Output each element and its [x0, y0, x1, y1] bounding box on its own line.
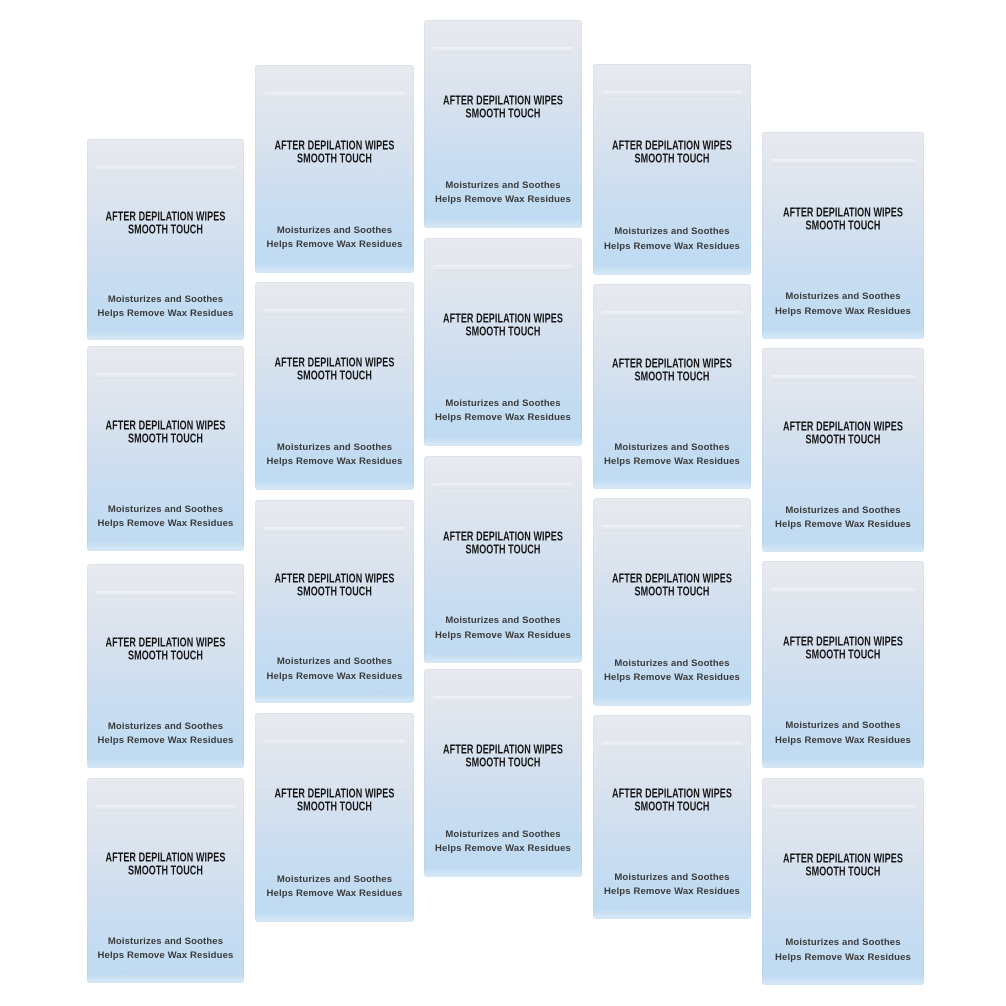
packet-title-line2: SMOOTH TOUCH — [101, 224, 230, 237]
packet-subtitle-line2: Helps Remove Wax Residues — [255, 238, 414, 252]
packet-title-line2: SMOOTH TOUCH — [607, 153, 737, 166]
wipes-packet: AFTER DEPILATION WIPES SMOOTH TOUCH Mois… — [255, 282, 414, 490]
wipes-packet: AFTER DEPILATION WIPES SMOOTH TOUCH Mois… — [593, 498, 751, 706]
packet-title: AFTER DEPILATION WIPES SMOOTH TOUCH — [101, 852, 230, 877]
seal-crimp-top — [263, 92, 406, 98]
packet-subtitle: Moisturizes and Soothes Helps Remove Wax… — [593, 871, 751, 900]
wipes-packet: AFTER DEPILATION WIPES SMOOTH TOUCH Mois… — [762, 778, 924, 985]
packet-title-line2: SMOOTH TOUCH — [269, 586, 399, 599]
packet-subtitle-line2: Helps Remove Wax Residues — [87, 307, 244, 321]
seal-crimp-top — [432, 265, 574, 271]
packet-title: AFTER DEPILATION WIPES SMOOTH TOUCH — [438, 531, 568, 556]
packet-title-line2: SMOOTH TOUCH — [269, 801, 399, 814]
seal-crimp-bottom — [87, 973, 244, 983]
packet-title: AFTER DEPILATION WIPES SMOOTH TOUCH — [438, 313, 568, 338]
wipes-packet: AFTER DEPILATION WIPES SMOOTH TOUCH Mois… — [762, 348, 924, 552]
packet-title: AFTER DEPILATION WIPES SMOOTH TOUCH — [438, 95, 568, 120]
seal-crimp-bottom — [424, 653, 582, 663]
packet-title-line1: AFTER DEPILATION WIPES — [438, 313, 568, 326]
packet-subtitle-line1: Moisturizes and Soothes — [593, 225, 751, 239]
packet-title-line2: SMOOTH TOUCH — [607, 801, 737, 814]
packet-subtitle-line2: Helps Remove Wax Residues — [87, 949, 244, 963]
packet-title-line1: AFTER DEPILATION WIPES — [777, 207, 910, 220]
packet-title-line1: AFTER DEPILATION WIPES — [438, 95, 568, 108]
seal-crimp-top — [432, 47, 574, 53]
seal-crimp-top — [95, 805, 236, 811]
packet-subtitle-line1: Moisturizes and Soothes — [424, 179, 582, 193]
packet-subtitle-line1: Moisturizes and Soothes — [593, 871, 751, 885]
seal-crimp-bottom — [593, 479, 751, 489]
packet-subtitle-line1: Moisturizes and Soothes — [424, 397, 582, 411]
packet-title-line2: SMOOTH TOUCH — [777, 865, 910, 878]
packet-title-line2: SMOOTH TOUCH — [607, 586, 737, 599]
packet-subtitle-line2: Helps Remove Wax Residues — [593, 455, 751, 469]
packet-title-line2: SMOOTH TOUCH — [438, 757, 568, 770]
seal-crimp-bottom — [255, 263, 414, 273]
packet-subtitle-line1: Moisturizes and Soothes — [87, 720, 244, 734]
wipes-packet: AFTER DEPILATION WIPES SMOOTH TOUCH Mois… — [87, 346, 244, 551]
packet-subtitle-line2: Helps Remove Wax Residues — [424, 193, 582, 207]
packet-title-line1: AFTER DEPILATION WIPES — [101, 852, 230, 865]
packet-subtitle-line1: Moisturizes and Soothes — [424, 828, 582, 842]
packet-title: AFTER DEPILATION WIPES SMOOTH TOUCH — [101, 637, 230, 662]
seal-crimp-top — [95, 373, 236, 379]
seal-crimp-top — [432, 696, 574, 702]
packet-subtitle: Moisturizes and Soothes Helps Remove Wax… — [87, 935, 244, 964]
packet-title: AFTER DEPILATION WIPES SMOOTH TOUCH — [269, 140, 399, 165]
packet-subtitle-line1: Moisturizes and Soothes — [87, 935, 244, 949]
packet-title-line2: SMOOTH TOUCH — [777, 434, 910, 447]
packet-subtitle: Moisturizes and Soothes Helps Remove Wax… — [762, 290, 924, 319]
packet-title: AFTER DEPILATION WIPES SMOOTH TOUCH — [101, 211, 230, 236]
packet-title: AFTER DEPILATION WIPES SMOOTH TOUCH — [269, 788, 399, 813]
seal-crimp-top — [601, 311, 743, 317]
wipes-packet: AFTER DEPILATION WIPES SMOOTH TOUCH Mois… — [255, 713, 414, 922]
packet-subtitle-line2: Helps Remove Wax Residues — [762, 734, 924, 748]
packet-subtitle-line1: Moisturizes and Soothes — [255, 655, 414, 669]
seal-crimp-bottom — [87, 758, 244, 768]
packet-title-line2: SMOOTH TOUCH — [101, 865, 230, 878]
packet-title-line1: AFTER DEPILATION WIPES — [777, 636, 910, 649]
packet-title: AFTER DEPILATION WIPES SMOOTH TOUCH — [777, 207, 910, 232]
seal-crimp-bottom — [87, 330, 244, 340]
seal-crimp-top — [601, 742, 743, 748]
seal-crimp-top — [432, 483, 574, 489]
packet-title-line1: AFTER DEPILATION WIPES — [607, 358, 737, 371]
packet-title: AFTER DEPILATION WIPES SMOOTH TOUCH — [269, 573, 399, 598]
packet-title-line2: SMOOTH TOUCH — [438, 326, 568, 339]
packet-title-line1: AFTER DEPILATION WIPES — [777, 853, 910, 866]
packet-subtitle-line2: Helps Remove Wax Residues — [424, 411, 582, 425]
packet-title: AFTER DEPILATION WIPES SMOOTH TOUCH — [607, 358, 737, 383]
packet-subtitle: Moisturizes and Soothes Helps Remove Wax… — [87, 720, 244, 749]
seal-crimp-top — [770, 588, 916, 594]
packet-title: AFTER DEPILATION WIPES SMOOTH TOUCH — [607, 140, 737, 165]
seal-crimp-bottom — [593, 265, 751, 275]
seal-crimp-bottom — [762, 758, 924, 768]
packet-subtitle: Moisturizes and Soothes Helps Remove Wax… — [762, 936, 924, 965]
packet-subtitle-line1: Moisturizes and Soothes — [593, 441, 751, 455]
packet-subtitle-line1: Moisturizes and Soothes — [593, 657, 751, 671]
packet-title-line1: AFTER DEPILATION WIPES — [607, 140, 737, 153]
packet-subtitle-line2: Helps Remove Wax Residues — [255, 455, 414, 469]
packet-subtitle: Moisturizes and Soothes Helps Remove Wax… — [593, 657, 751, 686]
packet-title: AFTER DEPILATION WIPES SMOOTH TOUCH — [777, 636, 910, 661]
packet-title-line1: AFTER DEPILATION WIPES — [438, 531, 568, 544]
packet-subtitle-line2: Helps Remove Wax Residues — [255, 670, 414, 684]
packet-subtitle: Moisturizes and Soothes Helps Remove Wax… — [593, 225, 751, 254]
wipes-packet: AFTER DEPILATION WIPES SMOOTH TOUCH Mois… — [87, 778, 244, 983]
packet-title-line2: SMOOTH TOUCH — [777, 648, 910, 661]
packet-subtitle-line2: Helps Remove Wax Residues — [593, 671, 751, 685]
packet-title: AFTER DEPILATION WIPES SMOOTH TOUCH — [777, 853, 910, 878]
packet-title-line2: SMOOTH TOUCH — [269, 153, 399, 166]
packet-title-line1: AFTER DEPILATION WIPES — [101, 420, 230, 433]
seal-crimp-top — [263, 527, 406, 533]
packet-title-line2: SMOOTH TOUCH — [101, 650, 230, 663]
packet-subtitle: Moisturizes and Soothes Helps Remove Wax… — [255, 441, 414, 470]
packet-subtitle-line1: Moisturizes and Soothes — [424, 614, 582, 628]
packet-subtitle: Moisturizes and Soothes Helps Remove Wax… — [255, 655, 414, 684]
packet-title: AFTER DEPILATION WIPES SMOOTH TOUCH — [607, 573, 737, 598]
seal-crimp-bottom — [762, 975, 924, 985]
packet-subtitle-line2: Helps Remove Wax Residues — [424, 842, 582, 856]
packet-subtitle-line2: Helps Remove Wax Residues — [762, 305, 924, 319]
packet-title-line2: SMOOTH TOUCH — [101, 433, 230, 446]
packet-subtitle: Moisturizes and Soothes Helps Remove Wax… — [87, 293, 244, 322]
wipes-packet: AFTER DEPILATION WIPES SMOOTH TOUCH Mois… — [255, 500, 414, 703]
seal-crimp-top — [770, 375, 916, 381]
packet-subtitle-line2: Helps Remove Wax Residues — [424, 629, 582, 643]
packet-title: AFTER DEPILATION WIPES SMOOTH TOUCH — [269, 357, 399, 382]
seal-crimp-bottom — [255, 912, 414, 922]
packet-subtitle: Moisturizes and Soothes Helps Remove Wax… — [255, 873, 414, 902]
packet-title: AFTER DEPILATION WIPES SMOOTH TOUCH — [777, 421, 910, 446]
packet-subtitle: Moisturizes and Soothes Helps Remove Wax… — [593, 441, 751, 470]
seal-crimp-bottom — [424, 867, 582, 877]
packet-subtitle-line2: Helps Remove Wax Residues — [762, 518, 924, 532]
packet-subtitle-line1: Moisturizes and Soothes — [255, 873, 414, 887]
packet-subtitle-line2: Helps Remove Wax Residues — [593, 240, 751, 254]
packet-title: AFTER DEPILATION WIPES SMOOTH TOUCH — [101, 420, 230, 445]
packet-title: AFTER DEPILATION WIPES SMOOTH TOUCH — [607, 788, 737, 813]
wipes-packet: AFTER DEPILATION WIPES SMOOTH TOUCH Mois… — [593, 64, 751, 275]
seal-crimp-top — [601, 91, 743, 97]
packet-subtitle: Moisturizes and Soothes Helps Remove Wax… — [424, 179, 582, 208]
seal-crimp-bottom — [255, 480, 414, 490]
seal-crimp-bottom — [593, 909, 751, 919]
packet-subtitle: Moisturizes and Soothes Helps Remove Wax… — [424, 614, 582, 643]
packet-title-line1: AFTER DEPILATION WIPES — [607, 573, 737, 586]
packet-title-line2: SMOOTH TOUCH — [607, 371, 737, 384]
seal-crimp-bottom — [424, 436, 582, 446]
seal-crimp-top — [601, 525, 743, 531]
wipes-packet: AFTER DEPILATION WIPES SMOOTH TOUCH Mois… — [424, 20, 582, 228]
packet-subtitle-line2: Helps Remove Wax Residues — [762, 951, 924, 965]
wipes-packet: AFTER DEPILATION WIPES SMOOTH TOUCH Mois… — [593, 715, 751, 919]
wipes-packet: AFTER DEPILATION WIPES SMOOTH TOUCH Mois… — [255, 65, 414, 273]
wipes-packet: AFTER DEPILATION WIPES SMOOTH TOUCH Mois… — [762, 561, 924, 768]
packet-subtitle-line1: Moisturizes and Soothes — [762, 290, 924, 304]
seal-crimp-top — [770, 159, 916, 165]
seal-crimp-top — [770, 805, 916, 811]
packet-subtitle: Moisturizes and Soothes Helps Remove Wax… — [87, 503, 244, 532]
packet-subtitle: Moisturizes and Soothes Helps Remove Wax… — [424, 828, 582, 857]
packet-subtitle-line2: Helps Remove Wax Residues — [87, 517, 244, 531]
packet-title-line2: SMOOTH TOUCH — [269, 370, 399, 383]
wipes-packet: AFTER DEPILATION WIPES SMOOTH TOUCH Mois… — [424, 238, 582, 446]
seal-crimp-bottom — [87, 541, 244, 551]
packet-subtitle-line1: Moisturizes and Soothes — [762, 719, 924, 733]
seal-crimp-bottom — [424, 218, 582, 228]
product-photo: AFTER DEPILATION WIPES SMOOTH TOUCH Mois… — [0, 0, 1006, 1006]
wipes-packet: AFTER DEPILATION WIPES SMOOTH TOUCH Mois… — [762, 132, 924, 339]
seal-crimp-bottom — [762, 542, 924, 552]
wipes-packet: AFTER DEPILATION WIPES SMOOTH TOUCH Mois… — [87, 139, 244, 340]
packet-subtitle-line1: Moisturizes and Soothes — [762, 504, 924, 518]
packet-title-line1: AFTER DEPILATION WIPES — [269, 357, 399, 370]
packet-title-line1: AFTER DEPILATION WIPES — [269, 140, 399, 153]
wipes-packet: AFTER DEPILATION WIPES SMOOTH TOUCH Mois… — [424, 456, 582, 663]
packet-subtitle: Moisturizes and Soothes Helps Remove Wax… — [762, 719, 924, 748]
wipes-packet: AFTER DEPILATION WIPES SMOOTH TOUCH Mois… — [593, 284, 751, 489]
packet-subtitle-line1: Moisturizes and Soothes — [255, 224, 414, 238]
packet-subtitle-line1: Moisturizes and Soothes — [87, 293, 244, 307]
packet-title-line2: SMOOTH TOUCH — [438, 108, 568, 121]
seal-crimp-top — [95, 166, 236, 172]
packet-subtitle-line2: Helps Remove Wax Residues — [593, 885, 751, 899]
packet-title: AFTER DEPILATION WIPES SMOOTH TOUCH — [438, 744, 568, 769]
packet-subtitle: Moisturizes and Soothes Helps Remove Wax… — [255, 224, 414, 253]
seal-crimp-bottom — [593, 696, 751, 706]
seal-crimp-top — [263, 740, 406, 746]
packet-subtitle-line1: Moisturizes and Soothes — [762, 936, 924, 950]
wipes-packet: AFTER DEPILATION WIPES SMOOTH TOUCH Mois… — [87, 564, 244, 768]
packet-subtitle-line2: Helps Remove Wax Residues — [87, 734, 244, 748]
packet-subtitle-line1: Moisturizes and Soothes — [255, 441, 414, 455]
packet-subtitle: Moisturizes and Soothes Helps Remove Wax… — [762, 504, 924, 533]
packet-title-line2: SMOOTH TOUCH — [777, 219, 910, 232]
packet-subtitle-line1: Moisturizes and Soothes — [87, 503, 244, 517]
packet-title-line2: SMOOTH TOUCH — [438, 543, 568, 556]
seal-crimp-bottom — [255, 693, 414, 703]
wipes-packet: AFTER DEPILATION WIPES SMOOTH TOUCH Mois… — [424, 669, 582, 877]
packet-subtitle-line2: Helps Remove Wax Residues — [255, 887, 414, 901]
seal-crimp-top — [95, 591, 236, 597]
seal-crimp-bottom — [762, 329, 924, 339]
packet-subtitle: Moisturizes and Soothes Helps Remove Wax… — [424, 397, 582, 426]
seal-crimp-top — [263, 309, 406, 315]
packet-title-line1: AFTER DEPILATION WIPES — [438, 744, 568, 757]
